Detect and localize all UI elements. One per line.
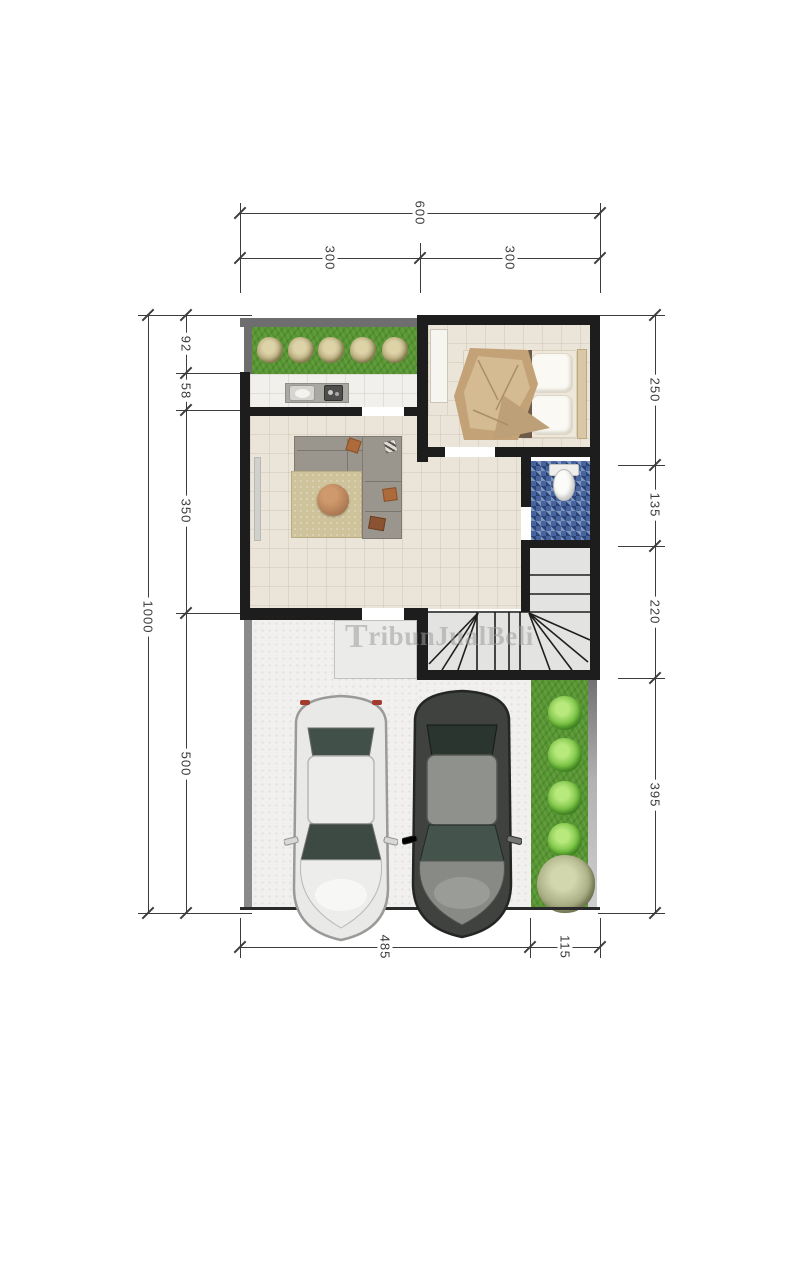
- side-bush: [548, 738, 582, 772]
- dim-ext: [600, 203, 601, 293]
- bathroom-door-gap: [521, 507, 531, 540]
- wall-garden-top: [240, 318, 418, 327]
- dim-label-left-seg3: 350: [179, 496, 194, 527]
- stove-burner: [328, 390, 333, 395]
- wall-bedroom-top: [417, 315, 600, 325]
- dim-label-right-seg3: 220: [648, 597, 663, 628]
- sofa-seat-line: [365, 481, 401, 482]
- bed-duvet: [448, 340, 560, 450]
- dim-label-right-seg4: 395: [648, 780, 663, 811]
- dim-ext: [618, 678, 665, 679]
- kitchen-door-gap: [362, 407, 404, 416]
- bedroom-window-gap: [445, 447, 495, 457]
- stove-burner: [335, 392, 339, 396]
- dim-ext: [240, 203, 241, 293]
- sofa-cushion: [382, 487, 398, 502]
- kitchen-sink: [289, 385, 315, 401]
- side-shrub-large: [537, 855, 595, 913]
- coffee-table: [317, 484, 349, 516]
- stair-treads: [417, 540, 600, 680]
- garden-bush: [288, 337, 314, 363]
- dim-label-left-seg4: 500: [179, 749, 194, 780]
- wall-kitchen-bottom-right: [404, 407, 428, 416]
- watermark: TribunJualBeli: [345, 618, 534, 656]
- dim-ext: [420, 243, 421, 293]
- wall-stair-bottom: [417, 670, 600, 680]
- watermark-rest: ribunJualBeli: [368, 621, 534, 651]
- dim-label-left-total: 1000: [141, 598, 156, 637]
- dim-label-bottom-seg2: 115: [558, 932, 573, 962]
- wall-kitchen-bottom-left: [240, 407, 362, 416]
- side-bush: [548, 823, 582, 857]
- dim-label-left-seg1: 92: [179, 333, 194, 355]
- wall-bedroom-bottom-left: [417, 447, 445, 457]
- side-bush: [548, 781, 582, 815]
- wall-left-carport: [244, 620, 252, 908]
- garden-bush: [318, 337, 344, 363]
- sink-basin: [295, 389, 310, 398]
- dim-label-top-seg2: 300: [503, 243, 518, 274]
- dim-ext: [600, 918, 601, 958]
- dim-label-top-total: 600: [413, 198, 428, 229]
- garden-bush: [350, 337, 376, 363]
- dim-label-right-seg2: 135: [648, 490, 663, 521]
- dim-ext: [138, 913, 252, 914]
- watermark-initial: T: [345, 618, 368, 655]
- wall-landing-left: [521, 540, 530, 612]
- car-white: [284, 690, 398, 948]
- garden-bush: [382, 337, 408, 363]
- sofa-cushion: [368, 516, 386, 532]
- dim-ext: [530, 918, 531, 958]
- side-bush: [548, 696, 582, 730]
- garden-bush: [257, 337, 283, 363]
- wall-center-vertical: [417, 315, 428, 462]
- dim-label-top-seg1: 300: [323, 243, 338, 274]
- wall-bathroom-left: [521, 455, 531, 507]
- wall-bedroom-bottom-right: [495, 447, 600, 457]
- toilet-bowl: [553, 469, 575, 501]
- dim-label-right-seg1: 250: [648, 375, 663, 406]
- bed-headboard: [577, 349, 587, 439]
- wall-right-main: [590, 315, 600, 680]
- dim-ext: [240, 918, 241, 958]
- wall-garden-left: [244, 318, 252, 374]
- wall-living-bottom-left: [240, 608, 362, 620]
- dim-label-left-seg2: 58: [179, 380, 194, 402]
- bedroom-closet: [430, 329, 448, 403]
- sofa-seat-line: [365, 511, 401, 512]
- dim-ext: [618, 546, 665, 547]
- dim-ext: [618, 465, 665, 466]
- kitchen-stove: [324, 385, 343, 401]
- wall-bathroom-bottom: [521, 540, 600, 548]
- car-dark: [402, 685, 522, 943]
- living-window: [254, 457, 261, 541]
- dim-ext: [138, 315, 252, 316]
- floor-plan-page: 600 300 300 1000 92 58 350 500 250 135 2…: [0, 0, 788, 1280]
